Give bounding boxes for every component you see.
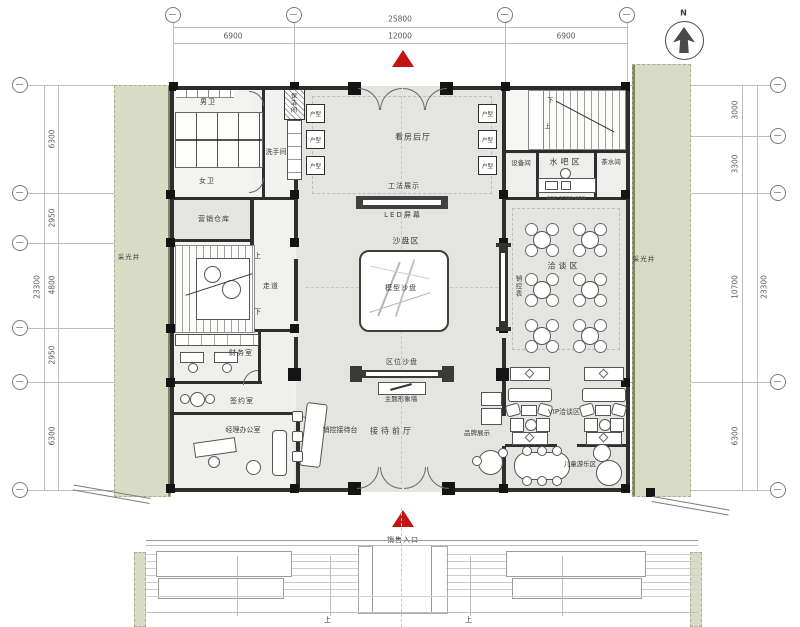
chair	[205, 394, 215, 404]
dim-right-total: 23300	[760, 275, 769, 299]
wall	[170, 488, 356, 492]
bar-equipment	[545, 181, 558, 190]
walkway	[372, 546, 432, 612]
room-label-corridor: 走道	[263, 281, 279, 291]
plaza-line	[146, 612, 698, 613]
dim-right-seg: 6300	[731, 426, 740, 445]
room-label-water-bar: 水吧区	[550, 157, 583, 168]
side-table	[246, 460, 261, 475]
meeting-table	[190, 392, 205, 407]
table-group	[524, 222, 560, 258]
wall	[626, 86, 630, 492]
grid-bubble	[770, 482, 786, 498]
room-label-washroom: 洗手间	[266, 147, 287, 157]
brand-fixture	[481, 392, 502, 406]
plaza-up-label: 上	[465, 615, 473, 625]
dim-left-seg: 2950	[48, 208, 57, 227]
chair	[292, 431, 303, 442]
dim-left-seg: 4800	[48, 275, 57, 294]
room-label-manager: 经理办公室	[226, 425, 261, 435]
column	[166, 190, 175, 199]
wall	[294, 259, 298, 321]
wall	[170, 239, 254, 242]
axis-line	[401, 508, 402, 627]
dim-left-total: 23300	[33, 275, 42, 299]
unit-display-box: 户型	[306, 156, 325, 175]
room-label-signing: 签约室	[230, 396, 254, 406]
wall	[502, 86, 506, 200]
stair-top-right	[542, 90, 626, 150]
room-label-finance: 财务室	[229, 348, 253, 358]
chair	[610, 418, 624, 432]
grid-bubble	[770, 374, 786, 390]
planter	[156, 551, 292, 577]
chair	[552, 446, 562, 456]
light-well-strip	[632, 64, 691, 497]
column	[290, 238, 299, 247]
room-label-sand-area: 沙盘区	[393, 236, 420, 247]
unit-display-box: 户型	[478, 156, 497, 175]
plaza-up-label: 上	[324, 615, 332, 625]
wall	[502, 338, 506, 364]
side-table	[599, 419, 611, 431]
plaza-line	[146, 596, 698, 597]
dim-right-seg: 10700	[731, 275, 740, 299]
room-label-reception-hall: 接待前厅	[370, 426, 414, 437]
column	[621, 484, 630, 493]
dim-right-seg: 3000	[731, 100, 740, 119]
coffee-table	[521, 405, 537, 416]
column	[290, 190, 299, 199]
leader-line	[330, 556, 331, 616]
label-led-screen: LED屏幕	[384, 210, 422, 220]
chair	[208, 456, 220, 468]
column	[499, 484, 508, 493]
grid-bubble	[770, 185, 786, 201]
column	[290, 324, 299, 333]
dim-right-seg: 3300	[731, 154, 740, 173]
sofa	[272, 430, 287, 476]
wall	[170, 412, 298, 415]
plaza-line	[146, 540, 698, 541]
round-table	[581, 327, 599, 345]
chair	[537, 446, 547, 456]
room-label-viewing-hall: 看房后厅	[395, 132, 431, 143]
chair	[292, 451, 303, 462]
chair	[498, 448, 508, 458]
round-table	[581, 231, 599, 249]
floor-plan: 25800 6900 12000 6900 23300 6300 2950 48…	[0, 0, 800, 627]
chair	[552, 476, 562, 486]
unit-display-box: 户型	[306, 104, 325, 123]
play-equipment	[596, 460, 622, 486]
grid-line	[690, 193, 770, 194]
leader-line	[470, 556, 471, 616]
led-screen-panel	[363, 200, 441, 205]
green-band	[134, 552, 146, 627]
dim-top-seg: 6900	[556, 32, 575, 41]
room-label-brand: 品牌展示	[464, 427, 490, 437]
grid-bubble	[286, 7, 302, 23]
chair	[584, 418, 598, 432]
leader-line	[562, 556, 563, 616]
dim-line	[58, 85, 59, 490]
sales-board-cap	[496, 243, 511, 247]
wall	[502, 200, 506, 242]
unit-display-box: 户型	[478, 130, 497, 149]
label-location-sand: 区位沙盘	[386, 357, 418, 367]
column	[499, 190, 508, 199]
dim-left-seg: 2950	[48, 345, 57, 364]
room-label-cleaning: 保洁间	[289, 93, 298, 114]
chair	[180, 394, 190, 404]
round-table	[581, 281, 599, 299]
room-label-light-well: 采光井	[633, 253, 656, 263]
chair	[222, 363, 232, 373]
chair	[510, 418, 524, 432]
column	[290, 484, 299, 493]
label-reception-desk: 销控接待台	[323, 425, 358, 435]
sink-counter	[287, 120, 302, 180]
north-label: N	[680, 9, 688, 18]
sales-board-cap	[496, 327, 511, 331]
sofa	[582, 388, 626, 402]
wall	[502, 150, 628, 153]
stair-up-label: 上	[254, 251, 262, 261]
wall	[170, 197, 298, 200]
room-label-warehouse: 营销仓库	[198, 214, 230, 224]
label-sales-board: 销控表	[513, 275, 523, 298]
table-group	[572, 222, 608, 258]
room-label-men-wc: 男卫	[200, 97, 216, 107]
room-label-women-wc: 女卫	[199, 176, 215, 186]
label-construction-display: 工法展示	[388, 181, 420, 191]
gate	[651, 496, 729, 515]
column	[496, 368, 509, 381]
chair	[537, 476, 547, 486]
chair	[536, 418, 550, 432]
column	[621, 190, 630, 199]
unit-display-label: 户型	[310, 110, 321, 118]
dim-top-seg: 12000	[388, 32, 412, 41]
grid-bubble	[770, 77, 786, 93]
column	[166, 324, 175, 333]
grid-line	[627, 22, 628, 86]
column	[166, 484, 175, 493]
grid-bubble	[497, 7, 513, 23]
coffee-table	[595, 405, 611, 416]
column	[501, 82, 510, 91]
grid-bubble	[12, 482, 28, 498]
room-label-kids: 儿童游乐区	[564, 458, 597, 468]
stair-down-label: 下	[254, 307, 262, 317]
table-group	[524, 318, 560, 354]
unit-display-box: 户型	[478, 104, 497, 123]
room-label-light-well: 采光井	[118, 251, 141, 261]
chair	[522, 476, 532, 486]
room-label-tea: 茶水间	[601, 156, 621, 166]
table-group	[572, 318, 608, 354]
grid-bubble	[770, 128, 786, 144]
brand-fixture	[481, 408, 502, 425]
dim-left-seg: 6300	[48, 129, 57, 148]
dim-top-total: 25800	[388, 15, 412, 24]
column	[288, 368, 301, 381]
desk	[180, 352, 204, 363]
dim-top-seg: 6900	[223, 32, 242, 41]
unit-display-label: 户型	[482, 110, 493, 118]
dim-line	[173, 43, 627, 44]
grid-line	[690, 136, 770, 137]
dim-line	[173, 27, 627, 28]
unit-display-label: 户型	[310, 136, 321, 144]
stair-landing	[528, 90, 544, 150]
stair-down-label: 下	[547, 96, 554, 105]
grid-bubble	[12, 374, 28, 390]
wall	[450, 488, 630, 492]
round-table	[533, 327, 551, 345]
grid-bubble	[12, 77, 28, 93]
toilet-stalls	[175, 112, 263, 168]
dim-left-seg: 6300	[48, 426, 57, 445]
stair-up-label: 上	[544, 122, 551, 131]
chair	[188, 363, 198, 373]
grid-line	[294, 22, 295, 86]
label-theme-wall: 主题形象墙	[385, 393, 418, 403]
dim-line	[742, 85, 743, 490]
unit-display-box: 户型	[306, 130, 325, 149]
column	[166, 238, 175, 247]
table-group	[524, 272, 560, 308]
chair	[292, 411, 303, 422]
wall	[170, 86, 174, 492]
sales-board-panel	[501, 253, 505, 321]
hall-zone	[312, 96, 492, 194]
entrance-marker-icon	[392, 50, 414, 67]
grid-line	[173, 22, 174, 86]
label-model-sand-table: 模型沙盘	[385, 283, 417, 293]
leader-line	[237, 556, 238, 616]
unit-display-label: 户型	[482, 162, 493, 170]
table-group	[572, 272, 608, 308]
sofa	[508, 388, 552, 402]
chair	[522, 446, 532, 456]
grid-bubble	[619, 7, 635, 23]
unit-display-label: 户型	[482, 136, 493, 144]
grid-bubble	[165, 7, 181, 23]
light-well-strip	[114, 85, 171, 497]
wall	[294, 197, 298, 241]
dim-bar: 600 2700 600	[547, 196, 586, 202]
grid-bubble	[12, 185, 28, 201]
dim-line	[44, 85, 45, 490]
planter	[506, 551, 646, 577]
fan-symbol	[204, 266, 221, 283]
dim-line	[757, 85, 758, 490]
chair	[472, 456, 482, 466]
room-label-negotiation: 洽谈区	[548, 261, 581, 272]
room-label-vip: VIP洽谈区	[548, 407, 580, 417]
round-table	[533, 281, 551, 299]
bar-equipment	[561, 181, 571, 190]
grid-line	[505, 22, 506, 86]
round-table	[533, 231, 551, 249]
room-label-equipment: 设备间	[511, 157, 531, 167]
finance-counter	[175, 334, 259, 346]
location-sand-panel	[366, 372, 438, 376]
unit-display-label: 户型	[310, 162, 321, 170]
entrance-marker-icon	[392, 510, 414, 527]
side-table	[525, 419, 537, 431]
grid-bubble	[12, 235, 28, 251]
column	[166, 378, 175, 387]
grid-bubble	[12, 320, 28, 336]
